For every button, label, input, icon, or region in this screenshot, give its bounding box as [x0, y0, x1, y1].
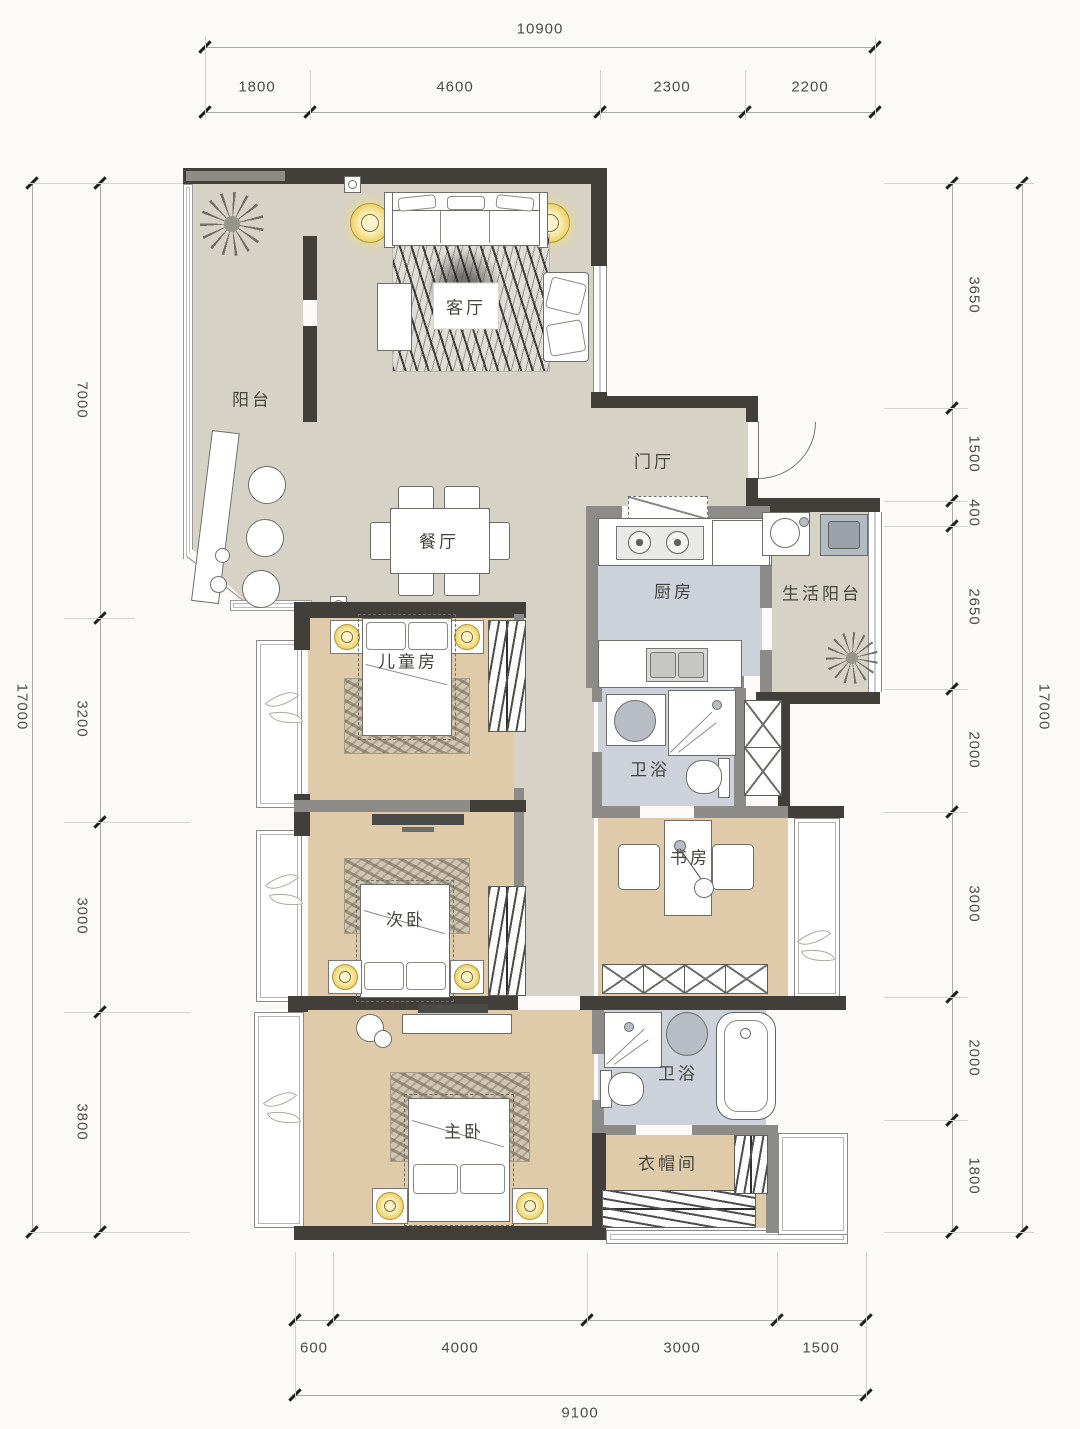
pillow [364, 962, 404, 990]
window-strip [593, 266, 607, 396]
wall-segment [591, 168, 607, 266]
pillow [408, 622, 448, 650]
door-opening [303, 300, 317, 326]
wall-segment [586, 518, 598, 688]
bedside-lamp-icon [332, 964, 358, 990]
bath-sink-icon [666, 1012, 708, 1056]
dim-top-seg: 4600 [436, 79, 473, 96]
door-opening [636, 1125, 692, 1135]
toilet-bowl [608, 1072, 644, 1106]
bedside-lamp-icon [376, 1192, 404, 1220]
study-chair [712, 844, 754, 890]
shower [668, 690, 736, 756]
wall-box-dot [348, 180, 357, 189]
room-floor-corridor [514, 614, 594, 1010]
wall-segment [470, 800, 526, 812]
deco-circle [374, 1030, 392, 1048]
bath-sink-icon [614, 700, 656, 742]
extension-line [884, 526, 968, 527]
wardrobe [488, 620, 526, 732]
tv-console [372, 814, 464, 825]
dim-bottom-seg: 1500 [802, 1340, 839, 1357]
leaf-deco [266, 688, 302, 740]
sofa-seam [489, 211, 490, 243]
dim-line [100, 183, 101, 1232]
toilet-bowl [686, 760, 722, 794]
label-master: 主卧 [444, 1118, 484, 1143]
master-console [402, 1014, 512, 1034]
label-service-balcony: 生活阳台 [782, 580, 862, 605]
extension-line [295, 1252, 296, 1400]
extension-line [884, 689, 968, 690]
label-living: 客厅 [433, 283, 499, 330]
extension-line [884, 997, 968, 998]
extension-line [777, 1252, 778, 1326]
sink-basin [678, 652, 704, 678]
extension-line [745, 70, 746, 120]
bedside-lamp-icon [454, 964, 480, 990]
dim-top-seg: 1800 [238, 79, 275, 96]
label-dining: 餐厅 [419, 528, 459, 553]
tv-console [418, 1004, 488, 1013]
extension-line [333, 1252, 334, 1326]
bedside-lamp-icon [516, 1192, 544, 1220]
wall-segment [186, 171, 285, 181]
desk-lamp-shade [694, 878, 714, 898]
wall-segment [294, 1226, 606, 1240]
tv-stand [402, 827, 434, 832]
balcony-stool [242, 570, 280, 608]
sofa-seat [392, 210, 540, 246]
dim-right-seg: 2000 [966, 1039, 983, 1076]
balcony-railing [183, 184, 193, 564]
wardrobe [488, 886, 526, 996]
extension-line [884, 501, 968, 502]
hall-cabinet [744, 700, 782, 749]
extension-line [884, 408, 968, 409]
dim-line [295, 1320, 866, 1321]
extension-line [875, 36, 876, 120]
plant-icon [826, 632, 878, 684]
label-foyer: 门厅 [634, 448, 674, 473]
extension-line [884, 1120, 968, 1121]
wall-segment [788, 806, 844, 818]
study-cabinet [643, 964, 686, 994]
extension-line [884, 1232, 1034, 1233]
dim-top-seg: 2200 [791, 79, 828, 96]
wall-segment [591, 396, 758, 408]
wall-segment [592, 1010, 604, 1054]
balcony-stool [248, 466, 286, 504]
extension-line [28, 183, 190, 184]
leaf-deco [266, 870, 302, 922]
closet-rack [734, 1135, 768, 1194]
dim-left-seg: 3200 [74, 700, 91, 737]
dim-left-seg: 3000 [74, 897, 91, 934]
pillow [413, 1164, 458, 1194]
bedside-lamp-icon [454, 624, 480, 650]
dim-line [32, 183, 33, 1232]
dim-bottom-seg: 3000 [663, 1340, 700, 1357]
dim-top-seg: 2300 [653, 79, 690, 96]
study-cabinet [602, 964, 645, 994]
extension-line [866, 1252, 867, 1400]
leaf-deco [264, 1088, 300, 1140]
dim-left-seg: 3800 [74, 1103, 91, 1140]
wall-segment [303, 236, 317, 422]
dim-bottom-seg: 4000 [441, 1340, 478, 1357]
balcony-stool [246, 519, 284, 557]
label-kitchen: 厨房 [654, 578, 694, 603]
pillow [460, 1164, 505, 1194]
label-balcony: 阳台 [232, 386, 272, 411]
study-cabinet [684, 964, 727, 994]
plant-icon [200, 192, 264, 256]
extension-line [600, 70, 601, 120]
label-bath1: 卫浴 [630, 756, 670, 781]
extension-line [64, 1012, 190, 1013]
label-children: 儿童房 [378, 648, 438, 673]
wall-segment [756, 498, 880, 512]
wall-segment [746, 396, 758, 422]
label-bath2: 卫浴 [658, 1060, 698, 1085]
dim-right-seg: 1500 [966, 435, 983, 472]
pillow [366, 622, 406, 650]
dim-line [205, 47, 875, 48]
sofa-cushion [447, 196, 485, 210]
washer-drum [770, 518, 800, 548]
wall-segment [760, 650, 772, 692]
dim-right-seg: 400 [966, 499, 983, 527]
sofa-seam [440, 211, 441, 243]
door-opening [518, 996, 580, 1010]
balcony-deco [215, 548, 230, 563]
dim-right-total: 17000 [1036, 684, 1053, 731]
dim-left-seg: 7000 [74, 381, 91, 418]
leaf-deco [798, 926, 834, 978]
extension-line [28, 1232, 190, 1233]
bedside-lamp-icon [334, 624, 360, 650]
side-table [377, 283, 412, 351]
extension-line [205, 36, 206, 120]
burner-icon [666, 531, 689, 554]
hall-cabinet [744, 747, 782, 796]
closet-rack [602, 1190, 756, 1228]
label-secondary: 次卧 [386, 906, 426, 931]
dim-bottom-seg: 600 [300, 1340, 328, 1357]
wall-segment [592, 752, 602, 808]
sink-basin [650, 652, 676, 678]
entry-door-arc [758, 422, 816, 479]
wall-segment [592, 688, 602, 702]
dim-right-seg: 3650 [966, 276, 983, 313]
dim-right-seg: 1800 [966, 1157, 983, 1194]
dim-line [952, 183, 953, 1232]
dim-line [1022, 183, 1023, 1232]
door-opening [640, 806, 694, 818]
study-cabinet [725, 964, 768, 994]
extension-line [884, 812, 968, 813]
bathtub-drain [740, 1028, 751, 1039]
dim-left-total: 17000 [14, 684, 31, 731]
dim-bottom-total: 9100 [561, 1405, 598, 1422]
shower-head-icon [712, 700, 722, 710]
dim-top-total: 10900 [517, 21, 564, 38]
extension-line [64, 822, 190, 823]
laundry-basin [828, 521, 860, 549]
label-closet: 衣帽间 [638, 1150, 698, 1175]
floor-plan-canvas: 10900 1800 4600 2300 2200 17000 7000 320… [0, 0, 1080, 1429]
study-chair [618, 844, 660, 890]
shower-head-icon [624, 1022, 634, 1032]
bay-window-closet-right [778, 1133, 848, 1235]
dim-line [295, 1395, 866, 1396]
burner-icon [628, 531, 651, 554]
label-study: 书房 [670, 844, 710, 869]
dim-right-seg: 2000 [966, 731, 983, 768]
armchair-cushion [545, 319, 586, 357]
extension-line [310, 70, 311, 120]
balcony-deco [210, 576, 227, 593]
pillow [406, 962, 446, 990]
shoe-cabinet [628, 496, 708, 520]
wall-segment [592, 996, 846, 1010]
extension-line [587, 1252, 588, 1326]
extension-line [884, 183, 1034, 184]
dim-right-seg: 3000 [966, 885, 983, 922]
dim-right-seg: 2650 [966, 588, 983, 625]
washer-knob [799, 517, 809, 527]
